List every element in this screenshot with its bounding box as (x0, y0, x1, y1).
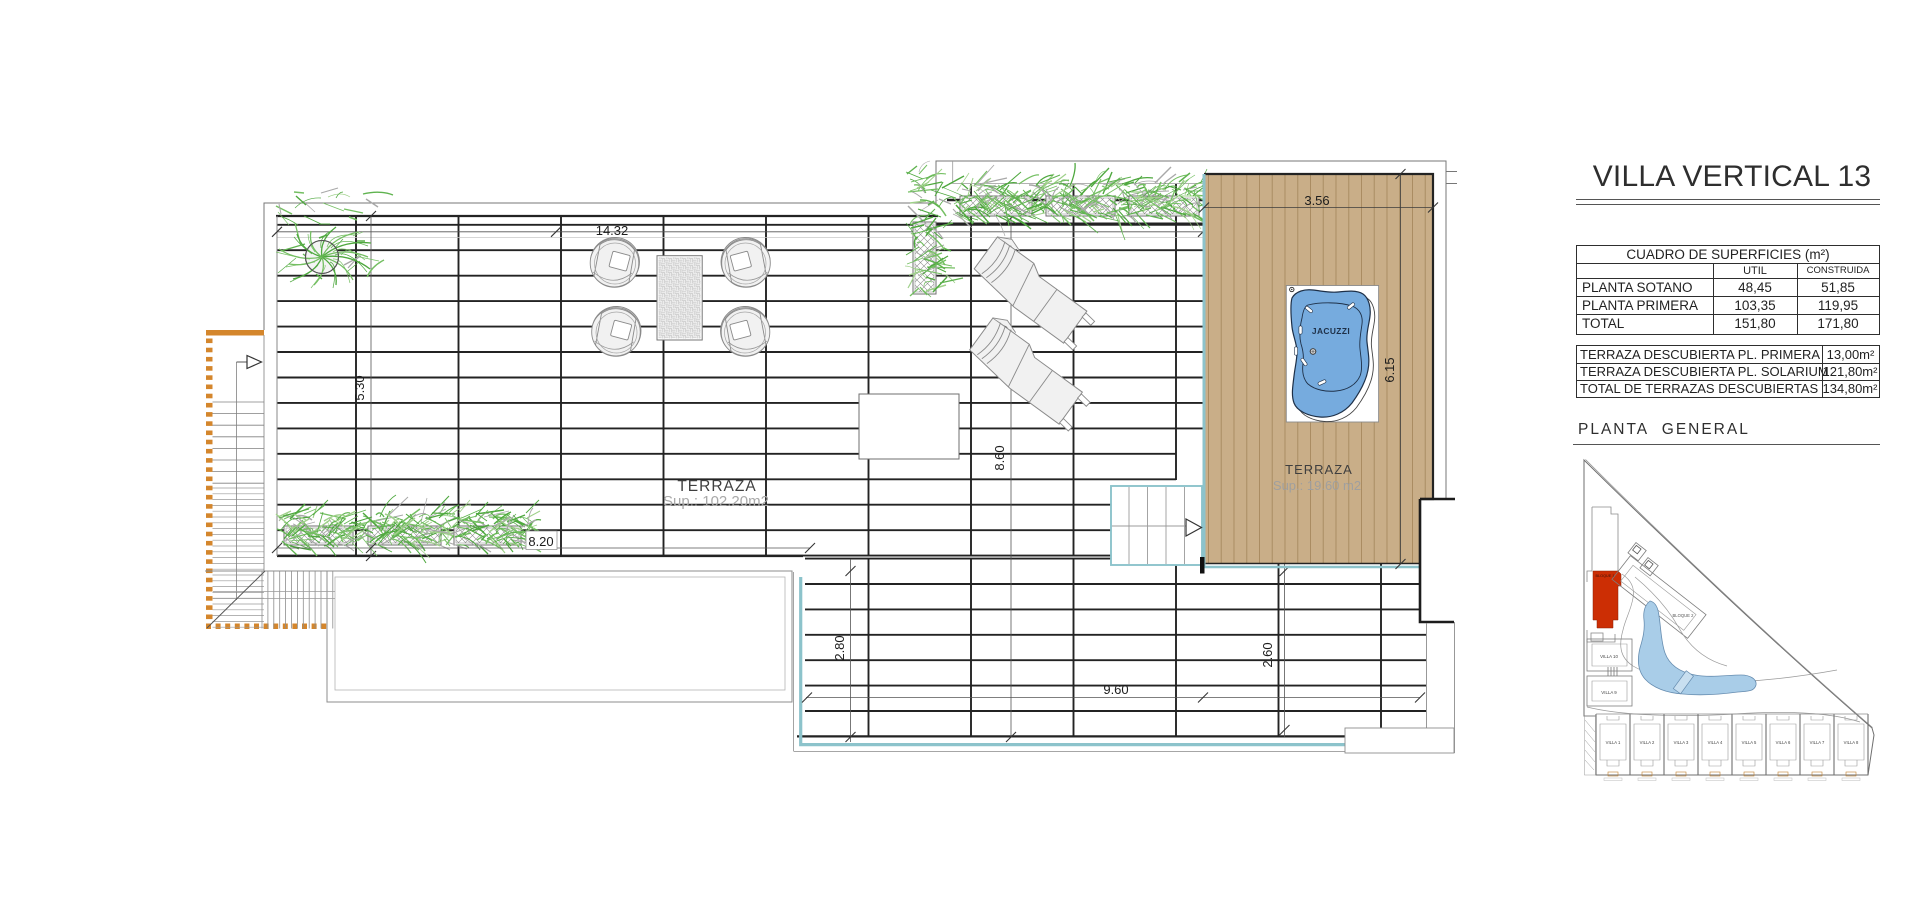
svg-text:JACUZZI: JACUZZI (1312, 326, 1350, 336)
svg-text:VILLA 10: VILLA 10 (1600, 654, 1618, 659)
svg-text:VILLA 5: VILLA 5 (1742, 740, 1757, 745)
svg-text:VILLA 4: VILLA 4 (1708, 740, 1723, 745)
svg-text:VILLA 7: VILLA 7 (1810, 740, 1825, 745)
svg-text:VILLA 8: VILLA 8 (1844, 740, 1859, 745)
svg-text:9.60: 9.60 (1103, 682, 1128, 697)
svg-text:BLOQUE 1: BLOQUE 1 (1596, 574, 1615, 578)
svg-text:2.80: 2.80 (832, 635, 847, 660)
svg-text:8.20: 8.20 (528, 534, 553, 549)
svg-text:6.15: 6.15 (1382, 357, 1397, 382)
svg-text:VILLA 3: VILLA 3 (1674, 740, 1689, 745)
svg-text:3.56: 3.56 (1304, 193, 1329, 208)
svg-text:8.60: 8.60 (992, 445, 1007, 470)
svg-text:Sup.: 102.20m2: Sup.: 102.20m2 (663, 493, 769, 510)
svg-text:14.32: 14.32 (596, 223, 629, 238)
svg-text:VILLA 9: VILLA 9 (1601, 690, 1617, 695)
svg-text:VILLA 1: VILLA 1 (1606, 740, 1621, 745)
svg-text:5.30: 5.30 (352, 375, 367, 400)
svg-text:TERRAZA: TERRAZA (1285, 462, 1353, 477)
svg-text:VILLA 6: VILLA 6 (1776, 740, 1791, 745)
svg-text:VILLA 2: VILLA 2 (1640, 740, 1655, 745)
svg-text:Sup.: 19.60 m2: Sup.: 19.60 m2 (1273, 478, 1361, 493)
svg-text:2.60: 2.60 (1260, 642, 1275, 667)
svg-text:BLOQUE 2: BLOQUE 2 (1673, 613, 1695, 618)
